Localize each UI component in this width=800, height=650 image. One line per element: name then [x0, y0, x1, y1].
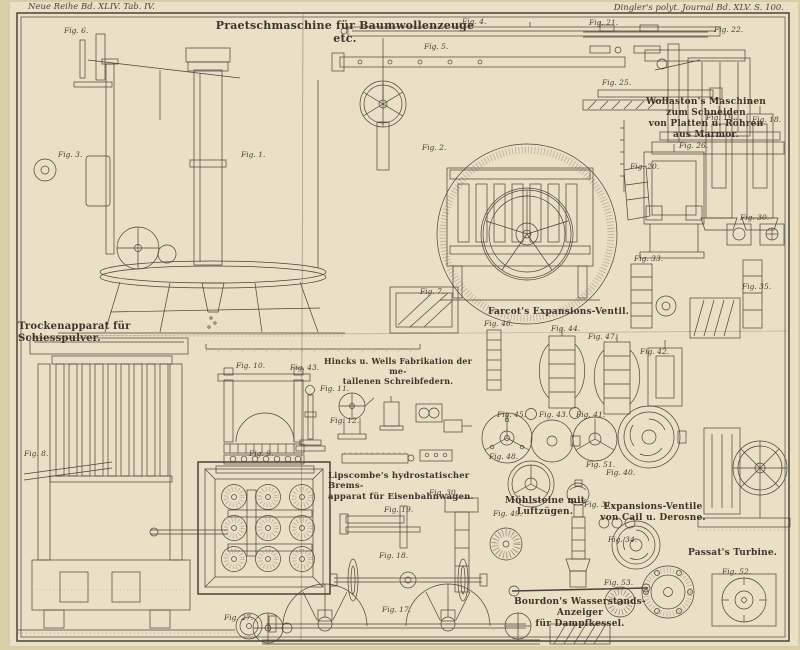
figure-label: Fig. 19.: [706, 113, 735, 122]
figure-label: Fig. 33.: [634, 254, 663, 263]
figure-label: Fig. 47.: [588, 332, 617, 341]
figure-label: Fig. 49.: [493, 509, 522, 518]
figure-label: Fig. 27.: [224, 613, 253, 622]
figure-label: Fig. 17.: [382, 605, 411, 614]
figure-label: Fig. 11.: [320, 384, 349, 393]
section-title: Bourdon's Wasserstands-Anzeiger für Damp…: [496, 597, 664, 630]
figure-label: Fig. 30.: [429, 488, 458, 497]
figure-label: Fig. 53.: [604, 578, 633, 587]
figure-label: Fig. 35.: [742, 282, 771, 291]
figure-label: Fig. 2.: [422, 143, 446, 152]
section-title: Hincks u. Wells Fabrikation der me- tall…: [322, 357, 474, 386]
figure-label: Fig. 42.: [640, 347, 669, 356]
figure-label: Fig. 9.: [249, 449, 273, 458]
figure-label: Fig. 21.: [589, 18, 618, 27]
figure-label: Fig. 46.: [484, 319, 513, 328]
section-title: Passat's Turbine.: [688, 548, 788, 559]
engraving-plate: Neue Reihe Bd. XLIV. Tab. IV. Dingler's …: [0, 0, 800, 650]
figure-label: Fig. 48.: [489, 452, 518, 461]
figure-label: Fig. 10.: [236, 361, 265, 370]
figure-label: Fig. 20.: [630, 162, 659, 171]
figure-label: Fig. 43.: [290, 363, 319, 372]
plate-series-label: Neue Reihe Bd. XLIV. Tab. IV.: [28, 2, 155, 12]
figure-label: Fig. 40.: [606, 468, 635, 477]
figure-label: Fig. 18.: [379, 551, 408, 560]
figure-label: Fig. 19.: [384, 505, 413, 514]
figure-label: Fig. 31.: [584, 500, 613, 509]
figure-label: Fig. 6.: [64, 26, 88, 35]
figure-label: Fig. 3.: [58, 150, 82, 159]
figure-label: Fig. 7.: [420, 287, 444, 296]
figure-label: Fig. 30.: [740, 213, 769, 222]
figure-label: Fig. 4.: [462, 17, 486, 26]
figure-label: Fig. 44.: [551, 324, 580, 333]
section-title: Trockenapparat für Schiesspulver.: [18, 321, 213, 345]
section-title: Farcot's Expansions-Ventil.: [486, 307, 631, 318]
figure-label: Fig. 43.: [539, 410, 568, 419]
figure-label: Fig. 25.: [602, 78, 631, 87]
figure-label: Fig. 22.: [714, 25, 743, 34]
figure-label: Fig. 1.: [241, 150, 265, 159]
figure-label: Fig. 41.: [576, 410, 605, 419]
figure-label: Fig. 52.: [722, 567, 751, 576]
figure-label: Fig. 5.: [424, 42, 448, 51]
section-title: Lipscombe's hydrostatischer Brems- appar…: [328, 471, 490, 502]
figure-label: Fig. 34.: [608, 535, 637, 544]
figure-label: Fig. 12.: [330, 416, 359, 425]
journal-reference-label: Dingler's polyt. Journal Bd. XLV. S. 100…: [614, 3, 784, 13]
figure-label: Fig. 8.: [24, 449, 48, 458]
figure-label: Fig. 45.: [497, 410, 526, 419]
figure-label: Fig. 18.: [752, 115, 781, 124]
figure-label: Fig. 26.: [679, 141, 708, 150]
